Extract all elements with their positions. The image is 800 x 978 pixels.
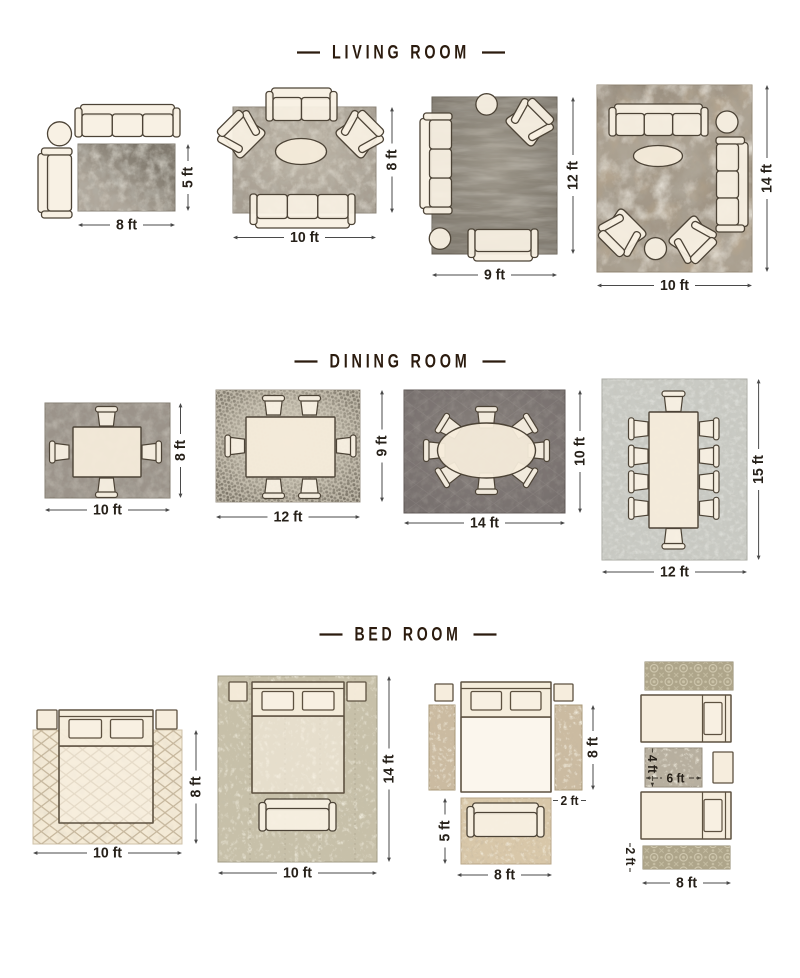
svg-text:LIVING ROOM: LIVING ROOM (332, 43, 470, 64)
svg-text:12 ft: 12 ft (566, 161, 582, 190)
svg-text:BED ROOM: BED ROOM (355, 625, 462, 646)
svg-text:4 ft: 4 ft (645, 755, 660, 774)
svg-text:10 ft: 10 ft (660, 278, 689, 294)
svg-text:10 ft: 10 ft (283, 866, 312, 882)
svg-text:8 ft: 8 ft (173, 440, 189, 461)
svg-text:14 ft: 14 ft (760, 164, 776, 193)
svg-text:14 ft: 14 ft (470, 516, 499, 532)
svg-text:9 ft: 9 ft (375, 435, 391, 456)
svg-text:10 ft: 10 ft (93, 503, 122, 519)
svg-text:12 ft: 12 ft (274, 510, 303, 526)
svg-text:8 ft: 8 ft (494, 868, 515, 884)
svg-text:5 ft: 5 ft (438, 820, 454, 841)
svg-text:6 ft: 6 ft (667, 770, 686, 785)
svg-text:10 ft: 10 ft (290, 230, 319, 246)
svg-text:2 ft: 2 ft (561, 793, 580, 808)
svg-text:8 ft: 8 ft (586, 737, 602, 758)
svg-text:15 ft: 15 ft (751, 455, 767, 484)
svg-text:8 ft: 8 ft (676, 876, 697, 892)
svg-text:10 ft: 10 ft (573, 437, 589, 466)
svg-text:5 ft: 5 ft (181, 167, 197, 188)
svg-text:8 ft: 8 ft (189, 776, 205, 797)
svg-text:12 ft: 12 ft (660, 565, 689, 581)
svg-text:9 ft: 9 ft (484, 268, 505, 284)
svg-text:2 ft: 2 ft (623, 848, 638, 867)
svg-text:8 ft: 8 ft (385, 149, 401, 170)
svg-text:14 ft: 14 ft (382, 754, 398, 783)
svg-text:10 ft: 10 ft (93, 846, 122, 862)
svg-text:DINING ROOM: DINING ROOM (330, 352, 471, 373)
svg-text:8 ft: 8 ft (116, 218, 137, 234)
